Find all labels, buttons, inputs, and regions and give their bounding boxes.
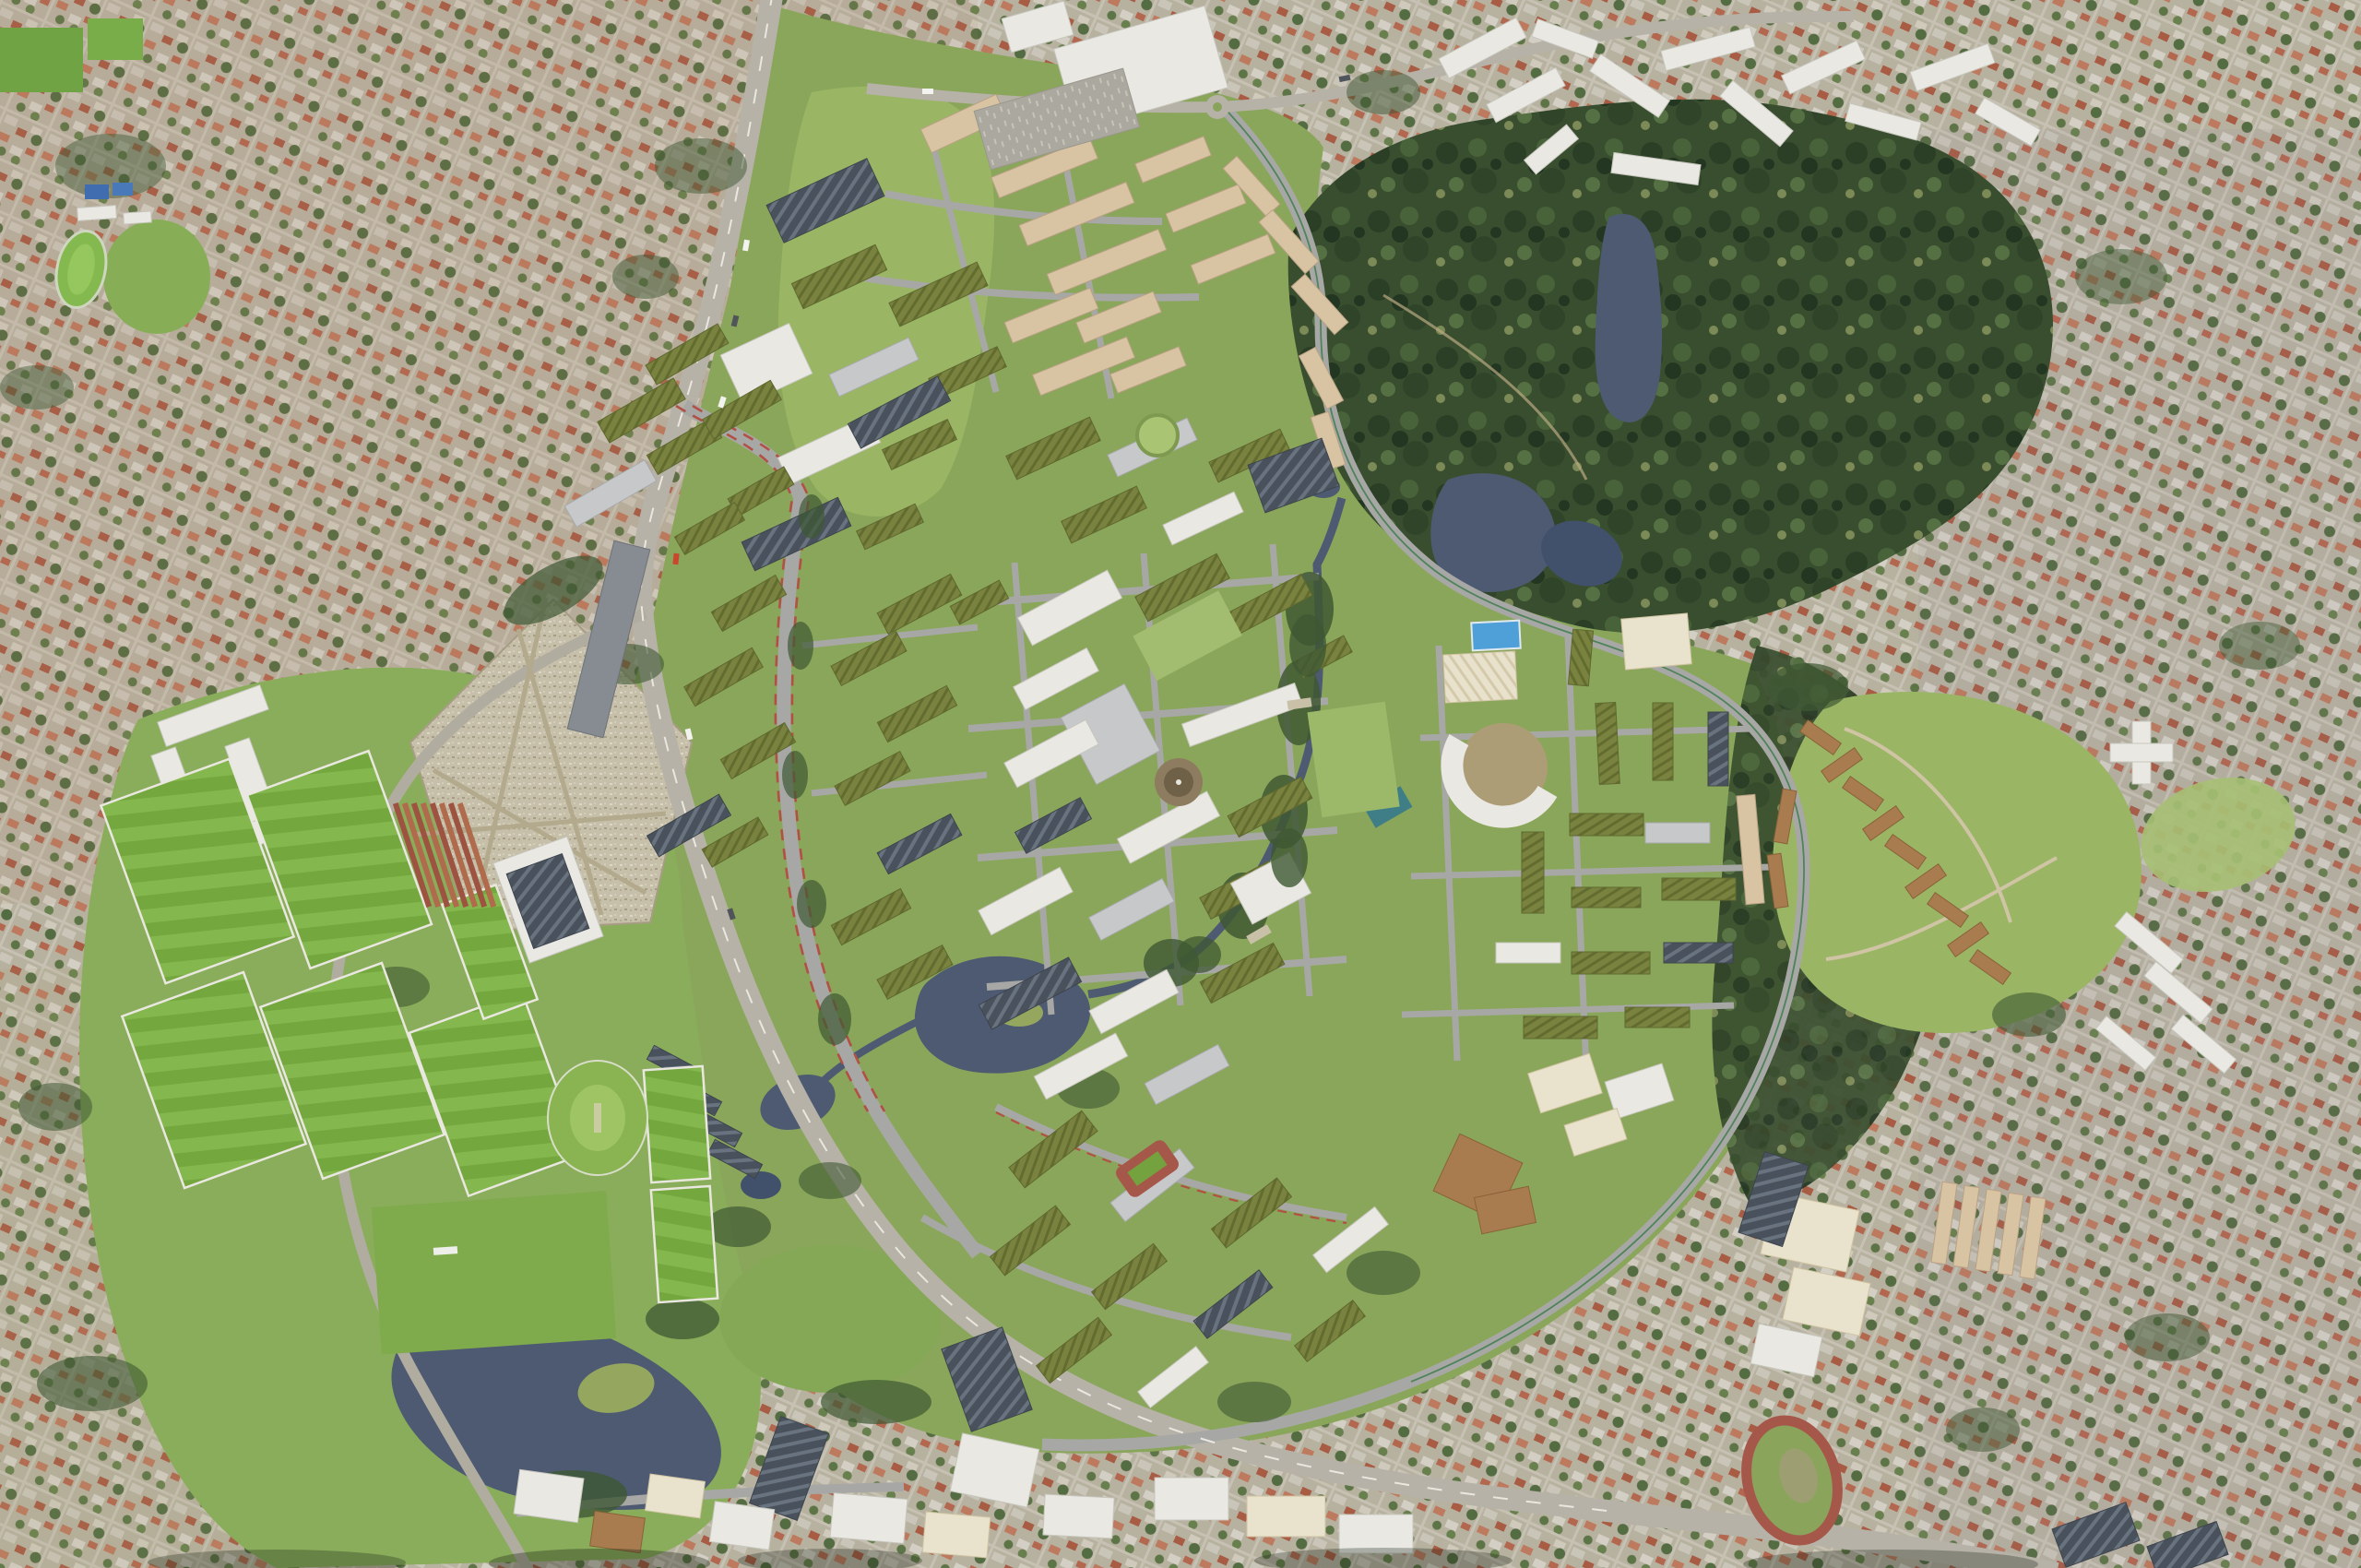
- tree-cluster: [0, 365, 74, 410]
- aerial-map-viewport: [0, 0, 2361, 1568]
- tree-cluster-overlay: [818, 993, 851, 1045]
- tree-cluster-overlay: [1177, 936, 1221, 973]
- quad-lawn-2: [1307, 702, 1399, 818]
- school-court-1: [85, 184, 109, 199]
- tree-cluster: [821, 1380, 931, 1424]
- tree-cluster: [2125, 1313, 2210, 1361]
- tree-cluster-overlay: [782, 751, 808, 799]
- corner-green-1: [0, 28, 83, 92]
- cricket-pitch: [594, 1103, 601, 1133]
- pond-mid-2: [741, 1171, 781, 1199]
- roundabout-island: [1213, 102, 1222, 112]
- vehicle-7: [922, 89, 933, 94]
- building: [1662, 878, 1736, 900]
- building: [651, 1186, 718, 1302]
- tree-cluster-overlay: [1271, 828, 1308, 887]
- school-court-2: [113, 183, 133, 196]
- building: [590, 1511, 646, 1552]
- building: [1339, 1515, 1413, 1553]
- tree-cluster: [1946, 1408, 2020, 1452]
- building: [1572, 887, 1641, 908]
- tree-cluster-overlay: [797, 880, 826, 928]
- tree-cluster: [1767, 663, 1848, 711]
- building: [1596, 702, 1620, 784]
- building: [1664, 943, 1733, 963]
- building: [2110, 743, 2173, 762]
- building: [709, 1502, 774, 1550]
- tree-cluster: [18, 1083, 92, 1131]
- building: [1572, 952, 1650, 974]
- building: [646, 1474, 706, 1518]
- building: [77, 206, 117, 221]
- aerial-masterplan-map: [0, 0, 2361, 1568]
- vehicle-4: [672, 553, 679, 565]
- tree-cluster: [1217, 1382, 1291, 1422]
- fountain-jet: [1176, 779, 1181, 785]
- building: [644, 1066, 710, 1182]
- tree-cluster: [1992, 992, 2066, 1037]
- tree-cluster-overlay: [799, 494, 825, 539]
- tree-cluster: [646, 1299, 719, 1339]
- corner-green-2: [88, 18, 143, 60]
- suburb-park-topleft: [103, 220, 210, 334]
- tree-cluster: [1347, 1251, 1420, 1295]
- building: [1522, 832, 1544, 913]
- aquatic-pool: [1471, 621, 1520, 651]
- forest-lake-large: [1596, 214, 1662, 422]
- building: [1625, 1007, 1690, 1028]
- tree-cluster: [55, 134, 166, 198]
- tree-cluster: [655, 138, 747, 194]
- circular-lawn: [1137, 415, 1178, 456]
- building: [1496, 943, 1560, 963]
- building: [1568, 629, 1593, 686]
- building: [1653, 703, 1673, 780]
- tree-cluster: [37, 1356, 148, 1411]
- building: [1524, 1016, 1597, 1039]
- building: [1247, 1496, 1325, 1537]
- tree-cluster-overlay: [1289, 614, 1326, 677]
- building: [1708, 712, 1728, 786]
- building: [1570, 814, 1643, 836]
- building: [124, 211, 152, 224]
- tree-cluster: [2075, 249, 2167, 304]
- building: [922, 1512, 991, 1558]
- building: [1645, 823, 1710, 843]
- tree-cluster: [1347, 70, 1420, 114]
- building: [514, 1469, 584, 1522]
- tree-cluster: [2219, 622, 2300, 670]
- building: [1621, 613, 1692, 670]
- building: [830, 1493, 908, 1544]
- building: [1043, 1494, 1114, 1538]
- building: [1155, 1478, 1228, 1520]
- tree-cluster: [799, 1162, 861, 1199]
- big-green-field: [372, 1191, 617, 1354]
- tree-cluster-overlay: [788, 622, 813, 670]
- tree-cluster: [612, 255, 679, 299]
- ribbed-greenhouse: [1443, 651, 1518, 703]
